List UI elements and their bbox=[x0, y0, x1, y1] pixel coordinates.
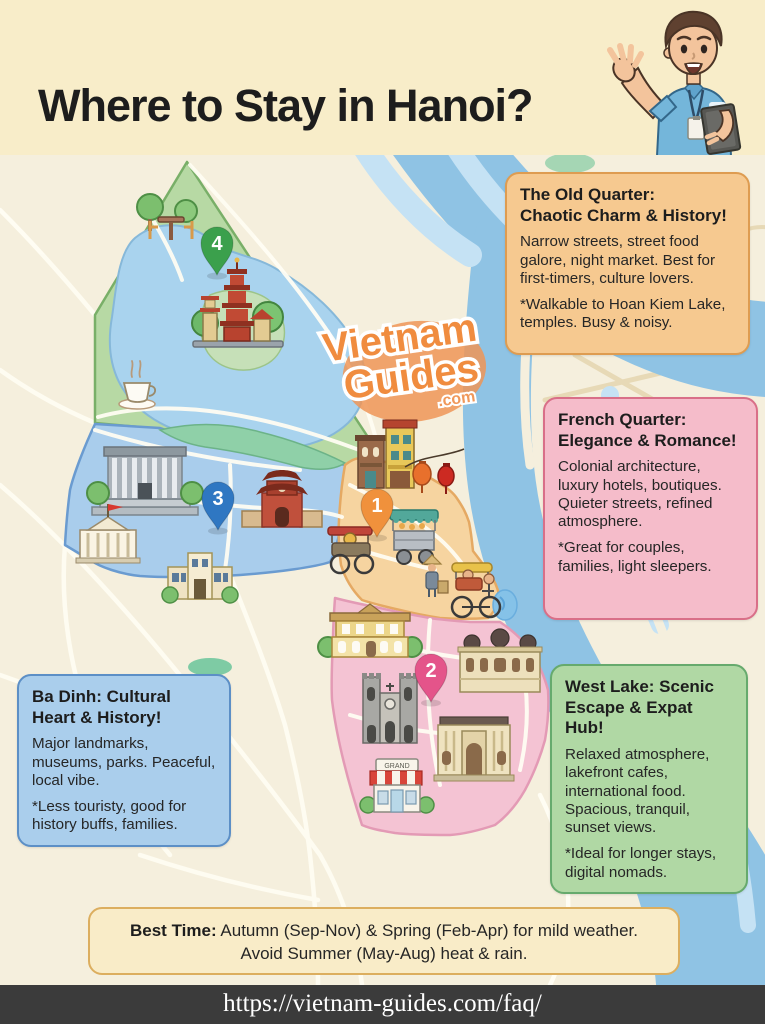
header-band: Where to Stay in Hanoi? bbox=[0, 0, 765, 155]
callout-old-quarter-title: The Old Quarter: Chaotic Charm & History… bbox=[520, 185, 735, 226]
page-title: Where to Stay in Hanoi? bbox=[38, 80, 533, 132]
callout-french-quarter: French Quarter: Elegance & Romance! Colo… bbox=[543, 397, 758, 620]
best-time-text: Autumn (Sep-Nov) & Spring (Feb-Apr) for … bbox=[217, 921, 638, 940]
callout-west-lake-title: West Lake: Scenic Escape & Expat Hub! bbox=[565, 677, 733, 739]
svg-text:3: 3 bbox=[212, 488, 223, 510]
boutique-sign-text: GRAND bbox=[384, 763, 409, 770]
svg-text:1: 1 bbox=[371, 495, 382, 517]
callout-old-quarter-body: Narrow streets, street food galore, nigh… bbox=[520, 233, 735, 288]
infographic-page: Where to Stay in Hanoi? bbox=[0, 0, 765, 1024]
domed-palace-icon bbox=[458, 629, 542, 692]
best-time-label: Best Time: bbox=[130, 921, 217, 940]
best-time-box: Best Time: Autumn (Sep-Nov) & Spring (Fe… bbox=[88, 907, 680, 975]
svg-text:4: 4 bbox=[211, 233, 223, 255]
svg-text:2: 2 bbox=[425, 660, 436, 682]
callout-ba-dinh-note: *Less touristy, good for history buffs, … bbox=[32, 798, 216, 834]
callout-west-lake: West Lake: Scenic Escape & Expat Hub! Re… bbox=[550, 664, 748, 894]
footer-bar: https://vietnam-guides.com/faq/ bbox=[0, 985, 765, 1024]
callout-old-quarter: The Old Quarter: Chaotic Charm & History… bbox=[505, 172, 750, 355]
best-time-line2: Avoid Summer (May-Aug) heat & rain. bbox=[90, 942, 678, 965]
cathedral-icon bbox=[362, 673, 418, 743]
callout-french-quarter-body: Colonial architecture, luxury hotels, bo… bbox=[558, 458, 743, 531]
callout-west-lake-body: Relaxed atmosphere, lakefront cafes, int… bbox=[565, 746, 733, 837]
opera-house-icon bbox=[434, 717, 514, 781]
tour-guide-man-icon bbox=[591, 6, 763, 156]
callout-ba-dinh-title: Ba Dinh: Cultural Heart & History! bbox=[32, 687, 216, 728]
callout-french-quarter-note: *Great for couples, families, light slee… bbox=[558, 539, 743, 575]
footer-url[interactable]: https://vietnam-guides.com/faq/ bbox=[223, 990, 542, 1017]
callout-french-quarter-title: French Quarter: Elegance & Romance! bbox=[558, 410, 743, 451]
callout-ba-dinh: Ba Dinh: Cultural Heart & History! Major… bbox=[17, 674, 231, 847]
callout-ba-dinh-body: Major landmarks, museums, parks. Peacefu… bbox=[32, 735, 216, 790]
callout-west-lake-note: *Ideal for longer stays, digital nomads. bbox=[565, 845, 733, 881]
best-time-line1: Best Time: Autumn (Sep-Nov) & Spring (Fe… bbox=[90, 919, 678, 942]
callout-old-quarter-note: *Walkable to Hoan Kiem Lake, temples. Bu… bbox=[520, 296, 735, 332]
